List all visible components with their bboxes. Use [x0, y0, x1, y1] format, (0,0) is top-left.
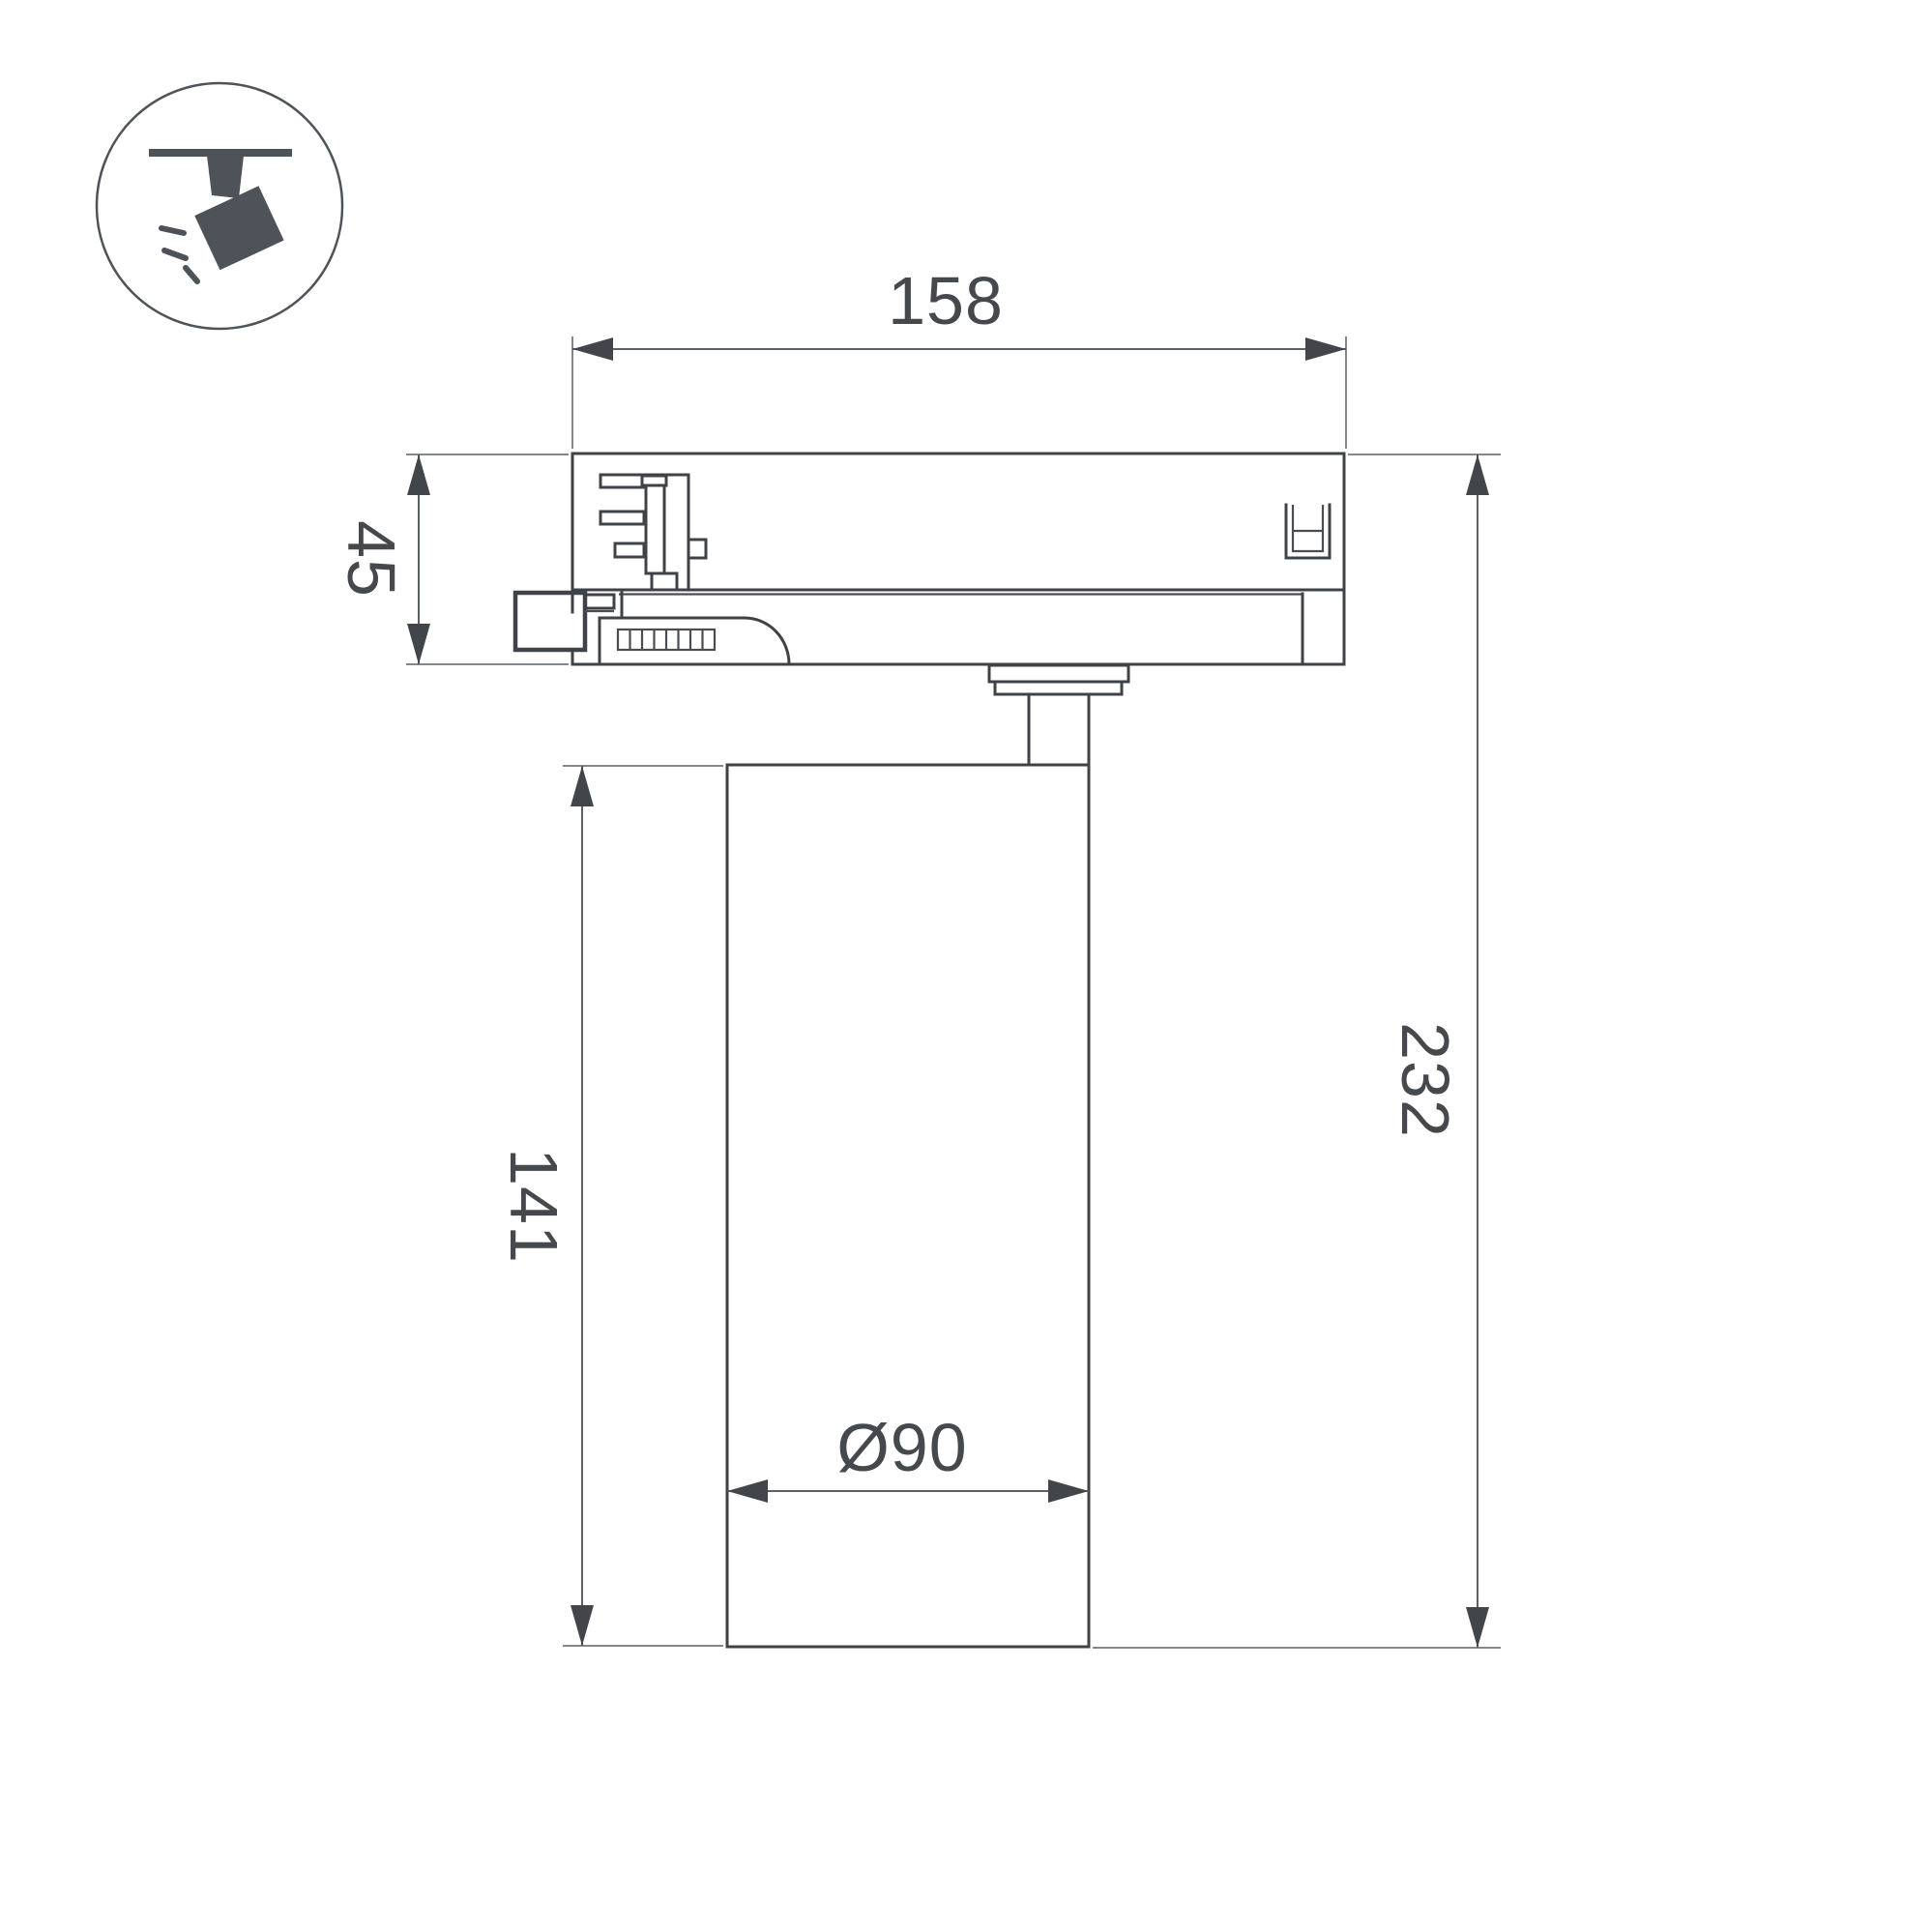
arrow-down [1466, 1607, 1489, 1648]
dim-label-diameter: Ø90 [836, 1410, 967, 1485]
adapter-clip [1286, 505, 1330, 558]
adapter-slider-ribs [630, 629, 703, 650]
dimension-body-height-141: 141 [496, 766, 723, 1646]
icon-spotlight-head [194, 186, 283, 270]
track-spotlight-icon [97, 83, 342, 329]
dimension-width-158: 158 [572, 263, 1346, 449]
adapter-dial [600, 618, 789, 664]
stem-flange-lower [995, 682, 1122, 694]
arrow-up [407, 454, 430, 495]
stem-flange-upper [989, 665, 1128, 682]
icon-connector-stem [207, 156, 244, 198]
drawing-page: 158 45 141 232 Ø90 [0, 0, 1932, 1932]
arrow-left [572, 337, 613, 361]
dim-label-adapter-height: 45 [334, 520, 409, 598]
adapter-lock-knob [515, 593, 585, 650]
arrow-down [571, 1605, 594, 1646]
track-adapter [515, 454, 1344, 664]
arrow-up [571, 766, 594, 806]
icon-light-rays [161, 228, 197, 281]
dim-label-body-height: 141 [496, 1148, 571, 1264]
adapter-latch [585, 592, 622, 618]
stem-column [1029, 694, 1089, 765]
technical-drawing: 158 45 141 232 Ø90 [0, 0, 1932, 1932]
adapter-contact-assembly [600, 475, 706, 590]
arrow-right [1305, 337, 1346, 361]
dimension-total-height-232: 232 [1093, 454, 1501, 1648]
swivel-stem [989, 665, 1128, 765]
dim-label-width: 158 [888, 263, 1004, 338]
icon-track-bar [149, 149, 292, 157]
dim-label-total-height: 232 [1388, 1022, 1463, 1138]
lamp-body [727, 765, 1089, 1647]
arrow-down [407, 624, 430, 664]
dimension-adapter-height-45: 45 [334, 454, 569, 664]
arrow-up [1466, 454, 1489, 495]
